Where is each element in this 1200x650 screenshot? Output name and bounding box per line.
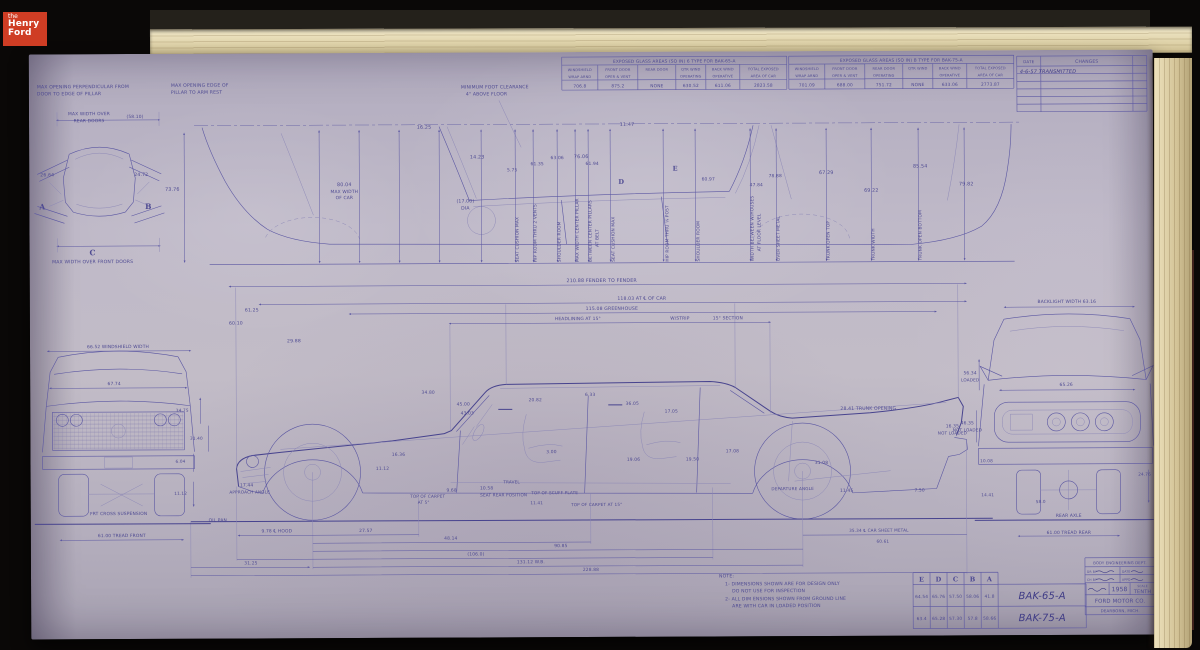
svg-text:47.84: 47.84	[750, 182, 763, 188]
svg-text:TOTAL EXPOSED: TOTAL EXPOSED	[974, 66, 1006, 70]
svg-text:OF CAR: OF CAR	[336, 195, 353, 201]
svg-text:OPERATING: OPERATING	[680, 75, 701, 79]
svg-text:36.05: 36.05	[626, 401, 639, 407]
svg-text:6.33: 6.33	[585, 392, 595, 398]
svg-text:A: A	[38, 202, 45, 211]
svg-text:WRAP ARND: WRAP ARND	[568, 75, 591, 79]
svg-text:29.88: 29.88	[287, 338, 301, 344]
svg-text:61.00 TREAD REAR: 61.00 TREAD REAR	[1047, 530, 1092, 536]
svg-text:AREA OF CAR: AREA OF CAR	[751, 74, 777, 78]
glass-area-table-bak65: EXPOSED GLASS AREAS (SQ IN) 6 TYPE FOR B…	[562, 56, 787, 90]
svg-text:2773.87: 2773.87	[981, 82, 1000, 88]
svg-text:DATE: DATE	[1122, 570, 1130, 574]
svg-text:SHOULDER ROOM: SHOULDER ROOM	[695, 221, 701, 262]
svg-text:90.85: 90.85	[554, 543, 567, 549]
svg-text:ARE WITH CAR IN LOADED POSITIO: ARE WITH CAR IN LOADED POSITION	[732, 603, 821, 609]
svg-text:45.00: 45.00	[457, 402, 470, 408]
svg-text:EXPOSED GLASS AREAS (SQ IN) 6: EXPOSED GLASS AREAS (SQ IN) 6 TYPE FOR B…	[613, 58, 736, 65]
svg-text:TOP OF SCUFF PLATE: TOP OF SCUFF PLATE	[530, 490, 578, 495]
door-section-detail	[34, 112, 165, 253]
svg-text:REAR DOOR: REAR DOOR	[873, 67, 896, 71]
svg-text:TENTH: TENTH	[1133, 589, 1152, 595]
svg-text:(58.10): (58.10)	[126, 114, 143, 120]
svg-text:67.74: 67.74	[107, 381, 120, 387]
svg-text:210.88 FENDER TO FENDER: 210.88 FENDER TO FENDER	[567, 278, 638, 284]
svg-text:TOP OF CARPET: TOP OF CARPET	[409, 494, 445, 499]
svg-text:34.80: 34.80	[422, 390, 435, 396]
svg-text:61.25: 61.25	[245, 307, 259, 313]
svg-text:HIP ROOM THRU ¼ POST: HIP ROOM THRU ¼ POST	[664, 205, 670, 262]
svg-text:NOTE:: NOTE:	[719, 573, 734, 579]
blueprint-sheet: EXPOSED GLASS AREAS (SQ IN) 6 TYPE FOR B…	[29, 50, 1156, 640]
svg-text:WINDSHIELD: WINDSHIELD	[568, 68, 592, 72]
svg-text:MINIMUM FOOT CLEARANCE: MINIMUM FOOT CLEARANCE	[461, 84, 529, 90]
svg-text:SEAT REAR POSITION: SEAT REAR POSITION	[480, 492, 527, 497]
svg-text:19.50: 19.50	[686, 457, 699, 463]
changes-table: DATECHANGES4-6-57 TRANSMITTED	[1017, 56, 1147, 112]
svg-text:TRUNK OPEN BOTTOM: TRUNK OPEN BOTTOM	[917, 210, 923, 262]
svg-text:24.72: 24.72	[134, 172, 148, 178]
svg-text:2- ALL DIM ENSIONS SHOWN FROM: 2- ALL DIM ENSIONS SHOWN FROM GROUND LIN…	[725, 596, 846, 603]
svg-text:57.30: 57.30	[949, 616, 962, 622]
svg-text:FRONT DOOR: FRONT DOOR	[605, 68, 631, 72]
svg-text:11.12: 11.12	[376, 466, 389, 472]
svg-text:20.82: 20.82	[529, 397, 542, 403]
svg-text:1- DIMENSIONS SHOWN ARE FOR DE: 1- DIMENSIONS SHOWN ARE FOR DESIGN ONLY	[725, 581, 840, 588]
svg-text:DEPARTURE ANGLE: DEPARTURE ANGLE	[771, 486, 814, 491]
svg-text:1958: 1958	[1112, 586, 1128, 593]
svg-text:BAK-75-A: BAK-75-A	[1019, 613, 1066, 624]
svg-text:64.54: 64.54	[915, 594, 928, 600]
svg-text:FORD MOTOR CO.: FORD MOTOR CO.	[1095, 599, 1146, 605]
svg-text:TOTAL EXPOSED: TOTAL EXPOSED	[747, 67, 779, 71]
svg-text:10.58: 10.58	[480, 485, 493, 491]
svg-text:9.68: 9.68	[446, 488, 456, 494]
svg-text:61.94: 61.94	[586, 161, 599, 167]
svg-text:65.26: 65.26	[1060, 382, 1073, 388]
svg-text:OPERATING: OPERATING	[873, 74, 894, 78]
svg-text:751.72: 751.72	[876, 82, 892, 88]
svg-text:11.41: 11.41	[530, 500, 543, 505]
data-tables: EXPOSED GLASS AREAS (SQ IN) 6 TYPE FOR B…	[562, 55, 1155, 631]
svg-text:AT BELT: AT BELT	[594, 229, 600, 247]
svg-text:REAR DOOR: REAR DOOR	[646, 68, 669, 72]
svg-text:28.41 TRUNK OPENING: 28.41 TRUNK OPENING	[840, 406, 896, 412]
svg-text:11.45: 11.45	[840, 488, 853, 494]
svg-text:61.00 TREAD FRONT: 61.00 TREAD FRONT	[98, 533, 146, 539]
svg-text:OVER SHEET METAL: OVER SHEET METAL	[775, 216, 781, 262]
svg-text:B: B	[145, 202, 152, 211]
svg-text:73.76: 73.76	[165, 187, 180, 193]
svg-text:BODY ENGINEERING DEPT.: BODY ENGINEERING DEPT.	[1093, 560, 1146, 565]
svg-text:58.0: 58.0	[1036, 499, 1046, 504]
pages-right-edge	[1154, 58, 1192, 648]
svg-text:PILLAR TO ARM REST: PILLAR TO ARM REST	[171, 90, 222, 96]
svg-text:31.08: 31.08	[815, 460, 828, 466]
svg-text:REAR AXLE: REAR AXLE	[1056, 513, 1082, 519]
svg-text:19.06: 19.06	[627, 457, 640, 463]
svg-text:7.50: 7.50	[914, 488, 924, 494]
svg-text:SEAT CUSHION MAX: SEAT CUSHION MAX	[610, 217, 616, 262]
svg-text:FRONT DOOR: FRONT DOOR	[832, 67, 858, 71]
svg-text:BACK WIND: BACK WIND	[939, 66, 961, 70]
svg-text:706.8: 706.8	[573, 84, 586, 90]
svg-text:WRAP ARND: WRAP ARND	[795, 74, 818, 78]
svg-text:BACKLIGHT WIDTH 63.16: BACKLIGHT WIDTH 63.16	[1038, 299, 1097, 305]
svg-text:611.06: 611.06	[715, 83, 731, 89]
svg-text:OPER & VENT: OPER & VENT	[832, 74, 858, 78]
logo-ford: Ford	[8, 29, 47, 38]
svg-text:D: D	[936, 575, 942, 583]
svg-text:DATE: DATE	[1023, 59, 1034, 64]
svg-text:60.10: 60.10	[229, 321, 243, 327]
rear-view	[974, 307, 1154, 537]
svg-text:OPER & VENT: OPER & VENT	[605, 75, 631, 79]
svg-text:NONE: NONE	[911, 82, 924, 88]
plan-dimension-arrows	[319, 128, 965, 262]
svg-text:AT 5°: AT 5°	[418, 500, 430, 505]
svg-text:701.09: 701.09	[799, 83, 815, 89]
svg-text:16.36: 16.36	[392, 452, 405, 458]
svg-text:SHOULDER ROOM: SHOULDER ROOM	[556, 221, 562, 262]
svg-text:11.12: 11.12	[174, 491, 187, 496]
svg-text:E: E	[919, 576, 924, 584]
side-elevation	[190, 283, 993, 577]
svg-text:DO NOT USE FOR INSPECTION: DO NOT USE FOR INSPECTION	[732, 588, 805, 594]
svg-text:A: A	[986, 575, 993, 583]
svg-text:65.28: 65.28	[932, 616, 945, 622]
svg-text:76.06: 76.06	[574, 154, 589, 160]
svg-text:60.61: 60.61	[876, 539, 889, 544]
svg-text:17.44: 17.44	[240, 482, 253, 488]
svg-text:DIA: DIA	[461, 206, 470, 212]
svg-text:TRUNK WIDTH: TRUNK WIDTH	[870, 228, 876, 262]
svg-text:OPERATIVE: OPERATIVE	[940, 73, 961, 77]
svg-text:HEADLINING AT 15°: HEADLINING AT 15°	[555, 316, 601, 322]
svg-text:630.52: 630.52	[683, 83, 699, 89]
svg-text:MAX WIDTH CENTER PILLAR: MAX WIDTH CENTER PILLAR	[574, 198, 580, 262]
svg-text:58.66: 58.66	[983, 616, 996, 622]
svg-text:5.75: 5.75	[507, 167, 517, 173]
svg-text:SCALE: SCALE	[1137, 584, 1147, 588]
svg-text:B: B	[970, 575, 976, 583]
svg-text:APPROACH ANGLE: APPROACH ANGLE	[229, 489, 270, 494]
svg-text:43.03: 43.03	[461, 411, 474, 417]
svg-text:57.8: 57.8	[968, 616, 978, 622]
svg-text:60.97: 60.97	[702, 176, 715, 182]
svg-text:131.12 W.B.: 131.12 W.B.	[517, 559, 545, 565]
svg-text:QTR WIND: QTR WIND	[681, 68, 701, 72]
svg-text:61.35: 61.35	[531, 161, 544, 167]
svg-text:2823.58: 2823.58	[754, 83, 773, 89]
svg-text:14.41: 14.41	[981, 492, 994, 497]
svg-text:C: C	[90, 248, 96, 257]
svg-text:CH BY: CH BY	[1087, 578, 1097, 582]
svg-text:27.57: 27.57	[359, 528, 372, 534]
svg-text:4-6-57 TRANSMITTED: 4-6-57 TRANSMITTED	[1020, 69, 1076, 75]
title-block: BODY ENGINEERING DEPT.DR BYDATECH BYAPPD…	[1085, 558, 1155, 615]
svg-text:MAX WIDTH OVER FRONT DOORS: MAX WIDTH OVER FRONT DOORS	[52, 259, 133, 265]
svg-text:66.52 WINDSHIELD WIDTH: 66.52 WINDSHIELD WIDTH	[87, 344, 149, 350]
svg-text:31.40: 31.40	[190, 436, 203, 441]
svg-text:9.78 ℄ HOOD: 9.78 ℄ HOOD	[261, 528, 292, 534]
svg-text:26.64: 26.64	[40, 172, 54, 178]
svg-text:11.47: 11.47	[620, 122, 635, 128]
svg-text:57.50: 57.50	[949, 594, 962, 600]
svg-text:(106.0): (106.0)	[467, 551, 484, 557]
svg-text:118.03 AT ℄ OF CAR: 118.03 AT ℄ OF CAR	[617, 296, 667, 302]
svg-text:TRAVEL: TRAVEL	[502, 479, 520, 484]
svg-text:6.04: 6.04	[176, 459, 186, 464]
svg-text:16.25: 16.25	[417, 125, 432, 131]
photo-background: the Henry Ford	[0, 0, 1200, 650]
svg-text:BACK WIND: BACK WIND	[712, 67, 734, 71]
svg-text:80.04: 80.04	[337, 182, 352, 188]
svg-text:228.88: 228.88	[583, 567, 599, 573]
svg-text:17.05: 17.05	[665, 409, 678, 415]
svg-text:4" ABOVE FLOOR: 4" ABOVE FLOOR	[466, 91, 508, 97]
svg-text:MAX WIDTH: MAX WIDTH	[331, 189, 359, 195]
svg-text:OIL PAN: OIL PAN	[209, 518, 227, 524]
svg-text:QTR WIND: QTR WIND	[908, 67, 928, 71]
svg-text:63.4: 63.4	[917, 616, 927, 622]
henry-ford-logo: the Henry Ford	[3, 12, 47, 46]
svg-text:C: C	[953, 575, 958, 583]
svg-text:85.54: 85.54	[913, 164, 928, 170]
section-dimension-table: EDCBA64.5465.7657.5058.0641.8BAK-65-A63.…	[913, 572, 1086, 629]
svg-text:BAK-65-A: BAK-65-A	[1018, 591, 1065, 602]
svg-text:65.76: 65.76	[932, 594, 945, 600]
svg-text:MAX OPENING PERPENDICULAR FROM: MAX OPENING PERPENDICULAR FROM	[37, 84, 129, 90]
svg-text:DOOR TO EDGE OF PILLAR: DOOR TO EDGE OF PILLAR	[37, 91, 102, 97]
svg-text:63.06: 63.06	[551, 155, 564, 161]
svg-text:875.2: 875.2	[611, 83, 624, 89]
svg-text:14.23: 14.23	[470, 154, 485, 160]
svg-text:(17.00): (17.00)	[456, 199, 474, 205]
svg-text:31.25: 31.25	[244, 560, 257, 566]
svg-text:SEAT CUSHION MAX: SEAT CUSHION MAX	[514, 217, 520, 262]
svg-text:58.06: 58.06	[966, 594, 979, 600]
svg-text:W/STRIP: W/STRIP	[670, 316, 690, 322]
svg-text:41.8: 41.8	[985, 594, 995, 600]
blueprint-drawing: EXPOSED GLASS AREAS (SQ IN) 6 TYPE FOR B…	[29, 50, 1156, 640]
svg-text:FRT CROSS SUSPENSION: FRT CROSS SUSPENSION	[90, 511, 147, 517]
svg-text:67.29: 67.29	[819, 170, 834, 176]
svg-text:34.75: 34.75	[176, 408, 189, 413]
svg-text:D: D	[618, 178, 624, 186]
svg-text:WIDTH BETWEEN W/HOUSES: WIDTH BETWEEN W/HOUSES	[749, 196, 755, 262]
svg-text:AREA OF CAR: AREA OF CAR	[978, 73, 1004, 77]
svg-text:NONE: NONE	[650, 83, 663, 89]
svg-text:AT FLOOR LEVEL: AT FLOOR LEVEL	[756, 213, 762, 251]
svg-text:CHANGES: CHANGES	[1075, 59, 1098, 65]
svg-text:17.08: 17.08	[726, 448, 739, 454]
svg-text:TOP OF CARPET AT 15°: TOP OF CARPET AT 15°	[570, 502, 622, 507]
plan-view	[184, 98, 1020, 265]
svg-text:69.22: 69.22	[864, 188, 879, 194]
svg-text:DR BY: DR BY	[1087, 570, 1097, 574]
svg-text:15° SECTION: 15° SECTION	[713, 315, 743, 321]
svg-text:OPERATIVE: OPERATIVE	[713, 74, 734, 78]
svg-text:BETWEEN CENTER PILLARS: BETWEEN CENTER PILLARS	[587, 200, 593, 262]
dimension-annotations: MAX OPENING PERPENDICULAR FROMDOOR TO ED…	[37, 79, 1152, 576]
glass-area-table-bak75: EXPOSED GLASS AREAS (SQ IN) B TYPE FOR B…	[789, 55, 1014, 89]
svg-text:79.82: 79.82	[959, 181, 974, 187]
svg-text:DEARBORN, MICH.: DEARBORN, MICH.	[1101, 608, 1140, 613]
svg-text:35.34 ℄ CAR SHEET METAL: 35.34 ℄ CAR SHEET METAL	[849, 528, 909, 533]
svg-text:688.00: 688.00	[837, 82, 853, 88]
svg-text:48.14: 48.14	[444, 536, 457, 542]
svg-text:APPD: APPD	[1122, 578, 1131, 582]
svg-text:E: E	[673, 165, 678, 173]
svg-text:633.06: 633.06	[942, 82, 958, 88]
svg-text:EXPOSED GLASS AREAS (SQ IN) B: EXPOSED GLASS AREAS (SQ IN) B TYPE FOR B…	[840, 57, 963, 64]
svg-text:MAX OPENING EDGE OF: MAX OPENING EDGE OF	[171, 83, 229, 89]
svg-text:24.76: 24.76	[1138, 472, 1151, 477]
svg-text:HIP ROOM THRU 2 VENTS: HIP ROOM THRU 2 VENTS	[532, 204, 538, 262]
svg-text:56.34: 56.34	[963, 370, 976, 376]
svg-text:3.00: 3.00	[546, 449, 556, 455]
svg-text:TRUNK OPEN TOP: TRUNK OPEN TOP	[825, 221, 831, 262]
svg-text:WINDSHIELD: WINDSHIELD	[795, 67, 819, 71]
svg-text:115.08 GREENHOUSE: 115.08 GREENHOUSE	[586, 306, 638, 312]
svg-text:LOADED: LOADED	[961, 377, 979, 382]
svg-text:NOT LOADED: NOT LOADED	[953, 427, 982, 432]
svg-text:MAX WIDTH OVER: MAX WIDTH OVER	[68, 111, 110, 117]
svg-text:REAR DOORS: REAR DOORS	[74, 118, 105, 124]
svg-text:10.08: 10.08	[980, 458, 993, 463]
svg-text:78.88: 78.88	[769, 173, 782, 179]
svg-text:46.35: 46.35	[961, 420, 974, 426]
notes-block: NOTE:1- DIMENSIONS SHOWN ARE FOR DESIGN …	[719, 573, 846, 610]
